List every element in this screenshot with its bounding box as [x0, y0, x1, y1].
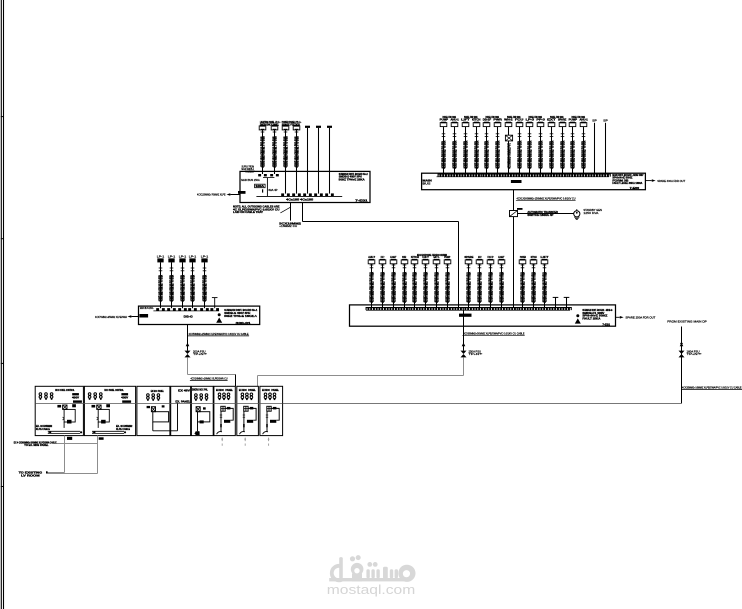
svg-text:EX 48V: EX 48V — [178, 390, 190, 393]
svg-text:4CX95MM2+50MM2 XLPE/SWA/PVC 0.: 4CX95MM2+50MM2 XLPE/SWA/PVC 0.6/1KV CU C… — [463, 332, 524, 336]
svg-text:4CX95 MM2+50M M2 PVC SWA: 4CX95 MM2+50M M2 PVC SWA — [442, 141, 448, 169]
svg-text:MECH EQUIP PANEL FEEDERS 4CX25: MECH EQUIP PANEL FEEDERS 4CX25MM2 — [417, 254, 447, 257]
svg-text:4CX95 MM2+50M M2 PVC SWA: 4CX95 MM2+50M M2 PVC SWA — [413, 272, 419, 303]
svg-text:50HZ TPN+E 16KA: 50HZ TPN+E 16KA — [224, 314, 253, 318]
svg-text:AHU-1: AHU-1 — [579, 118, 588, 122]
svg-text:SWITCH 1600A 4P: SWITCH 1600A 4P — [527, 213, 553, 217]
svg-text:4CX95 MM2+50M M2 PVC SWA: 4CX95 MM2+50M M2 PVC SWA — [170, 275, 176, 302]
svg-text:SP: SP — [603, 119, 608, 123]
svg-text:LIGHT: LIGHT — [390, 255, 396, 259]
svg-text:400V: 400V — [121, 397, 128, 400]
svg-text:LIFT: LIFT — [541, 255, 549, 259]
svg-text:SPARE FEEDER: SPARE FEEDER — [282, 122, 300, 126]
svg-text:4CX95 MM2+50M M2 PVC SWA: 4CX95 MM2+50M M2 PVC SWA — [435, 272, 441, 303]
svg-text:LAID ON CABLE TRAY: LAID ON CABLE TRAY — [233, 210, 263, 214]
svg-text:4CX95 MM2+50M M2 PVC SWA: 4CX95 MM2+50M M2 PVC SWA — [295, 136, 301, 167]
svg-text:EX MCC: EX MCC — [262, 389, 270, 392]
svg-text:4CX95 MM2+50M M2 PVC SWA: 4CX95 MM2+50M M2 PVC SWA — [478, 272, 484, 303]
svg-text:4CX120MM2+70MM2 XLPE: 4CX120MM2+70MM2 XLPE — [197, 193, 226, 197]
svg-text:400V: 400V — [72, 397, 79, 400]
svg-text:FCU: FCU — [515, 118, 523, 122]
svg-text:4CX95 MM2+50M M2 PVC SWA: 4CX95 MM2+50M M2 PVC SWA — [561, 141, 567, 169]
svg-text:LP-1: LP-1 — [157, 256, 165, 259]
svg-text:PP-3: PP-3 — [536, 118, 545, 122]
svg-text:4CX95 MM2+50M M2 PVC SWA: 4CX95 MM2+50M M2 PVC SWA — [159, 275, 165, 302]
svg-text:4CX95 MM2+50M M2 PVC SWA: 4CX95 MM2+50M M2 PVC SWA — [475, 141, 481, 169]
svg-text:PWR: PWR — [493, 118, 503, 122]
svg-text:PANEL: PANEL — [271, 389, 279, 392]
svg-text:FCU P: FCU P — [488, 255, 494, 259]
svg-text:POWER: POWER — [402, 255, 406, 259]
svg-text:BUS: BUS — [423, 182, 431, 186]
svg-text:EX MCC PANEL: EX MCC PANEL — [151, 389, 164, 393]
svg-text:PANEL: PANEL — [225, 389, 233, 392]
svg-text:7-E00: 7-E00 — [630, 186, 640, 190]
svg-text:MCC PANEL CONTROL: MCC PANEL CONTROL — [104, 388, 124, 392]
svg-text:EX. PANEL: EX. PANEL — [175, 400, 190, 404]
svg-text:TP+N: TP+N — [193, 352, 204, 356]
svg-text:SPARE: SPARE — [464, 255, 473, 259]
svg-text:XLPE CABLE: XLPE CABLE — [116, 427, 130, 431]
svg-text:SPARE 400A FDR OUT: SPARE 400A FDR OUT — [657, 179, 685, 183]
svg-text:63A 4P: 63A 4P — [269, 188, 278, 192]
svg-text:DB-G: DB-G — [184, 315, 194, 319]
svg-text:1250 KVA: 1250 KVA — [583, 211, 598, 215]
svg-text:4CX95 MM2+50M M2 PVC SWA: 4CX95 MM2+50M M2 PVC SWA — [532, 272, 538, 303]
svg-text:EMERGENCY PANEL: EMERGENCY PANEL — [260, 122, 279, 126]
svg-text:LP-1: LP-1 — [168, 256, 176, 259]
svg-text:4CX95 MM2+50M M2 PVC SWA: 4CX95 MM2+50M M2 PVC SWA — [521, 272, 527, 303]
svg-text:FAULT 25KA: FAULT 25KA — [582, 316, 600, 320]
svg-text:LP-1: LP-1 — [189, 256, 197, 259]
svg-text:4Cx185: 4Cx185 — [286, 198, 300, 202]
svg-text:300-01: 300-01 — [236, 321, 252, 325]
svg-text:XLPE CABLE: XLPE CABLE — [36, 427, 50, 431]
svg-text:4CX95 MM2+50M M2 PVC SWA: 4CX95 MM2+50M M2 PVC SWA — [543, 272, 549, 303]
svg-text:4CX95 MM2+50M M2 PVC SWA: 4CX95 MM2+50M M2 PVC SWA — [485, 141, 491, 169]
svg-text:4CX95 MM2+50M M2 PVC SWA: 4CX95 MM2+50M M2 PVC SWA — [464, 141, 470, 169]
svg-text:4CX95 MM2+50M M2 PVC SWA: 4CX95 MM2+50M M2 PVC SWA — [181, 275, 187, 302]
svg-text:PANEL: PANEL — [248, 389, 256, 392]
svg-text:4CX95 MM2+50M M2 PVC SWA: 4CX95 MM2+50M M2 PVC SWA — [528, 141, 534, 169]
svg-text:4CX95 MM2+50M M2 PVC SWA: 4CX95 MM2+50M M2 PVC SWA — [191, 275, 197, 302]
svg-text:4CX95 MM2+50M M2 PVC SWA: 4CX95 MM2+50M M2 PVC SWA — [203, 275, 209, 302]
svg-text:4CX16MM2+16MM2 XLPE/SWA CU: 4CX16MM2+16MM2 XLPE/SWA CU — [191, 377, 228, 381]
svg-text:LV ROOM: LV ROOM — [21, 474, 41, 478]
svg-text:MCC PANEL CONTROL: MCC PANEL CONTROL — [55, 388, 75, 392]
svg-text:EX MCC: EX MCC — [216, 389, 224, 392]
svg-text:4CX95 MM2+50M M2 PVC SWA: 4CX95 MM2+50M M2 PVC SWA — [392, 272, 398, 303]
svg-text:4CX95 MM2+50M M2 PVC SWA: 4CX95 MM2+50M M2 PVC SWA — [284, 136, 290, 167]
svg-text:LIGHT: LIGHT — [498, 255, 504, 259]
svg-text:FROM EXISTING MAIN DP: FROM EXISTING MAIN DP — [667, 320, 707, 324]
svg-text:EMERG MCC PNL: EMERG MCC PNL — [192, 387, 208, 391]
svg-text:400/230V: 400/230V — [245, 170, 255, 174]
svg-text:EX MCC: EX MCC — [239, 389, 247, 392]
svg-text:POWER: POWER — [520, 255, 527, 259]
svg-text:4CX95 MM2+50M M2 PVC SWA: 4CX95 MM2+50M M2 PVC SWA — [261, 136, 267, 167]
svg-text:4CX95 MM2+50M M2 PVC SWA: 4CX95 MM2+50M M2 PVC SWA — [273, 136, 279, 167]
svg-text:AHU P: AHU P — [368, 255, 375, 259]
svg-text:4CX95 MM2+50M M2 PVC SWA: 4CX95 MM2+50M M2 PVC SWA — [500, 272, 506, 303]
svg-text:4CX95 MM2+50M M2 PVC SWA: 4CX95 MM2+50M M2 PVC SWA — [467, 272, 473, 303]
svg-text:4CX95 MM2+50M M2 PVC SWA: 4CX95 MM2+50M M2 PVC SWA — [539, 141, 545, 169]
svg-text:4CX95 MM2+50M M2 PVC SWA: 4CX95 MM2+50M M2 PVC SWA — [489, 272, 495, 303]
svg-text:4CX95 MM2+50M M2 PVC SWA: 4CX95 MM2+50M M2 PVC SWA — [582, 141, 588, 169]
svg-text:LP-1: LP-1 — [179, 256, 187, 259]
svg-text:AHU P: AHU P — [478, 255, 482, 259]
svg-text:4CX95 MM2+50M M2 PVC SWA: 4CX95 MM2+50M M2 PVC SWA — [550, 141, 556, 169]
svg-text:KITCH: KITCH — [472, 118, 480, 122]
svg-text:50HZ TPN+E 25KA: 50HZ TPN+E 25KA — [339, 177, 365, 181]
svg-text:MAIN BUS 250A: MAIN BUS 250A — [241, 178, 260, 182]
svg-text:TO EX. MDB PANEL: TO EX. MDB PANEL — [24, 443, 48, 447]
svg-text:SPARE 250A FDR OUT: SPARE 250A FDR OUT — [625, 316, 655, 320]
svg-text:FCU P: FCU P — [381, 255, 385, 259]
svg-text:4CX70MM2+35MM2 XLPE/SWA: 4CX70MM2+35MM2 XLPE/SWA — [95, 315, 127, 319]
svg-text:SP: SP — [592, 119, 597, 123]
svg-text:FAULT LEVEL 36KA 1600A: FAULT LEVEL 36KA 1600A — [612, 181, 642, 185]
svg-text:7-E01: 7-E01 — [355, 198, 368, 202]
svg-text:4CX95 MM2+50M M2 PVC SWA: 4CX95 MM2+50M M2 PVC SWA — [424, 272, 430, 303]
svg-text:100A: 100A — [255, 184, 264, 188]
svg-text:4CX95 MM2+50M M2 PVC SWA: 4CX95 MM2+50M M2 PVC SWA — [446, 272, 452, 303]
svg-text:mostaql.com: mostaql.com — [327, 583, 416, 597]
svg-text:AHU-1: AHU-1 — [450, 118, 459, 122]
svg-text:SPARE: SPARE — [558, 118, 566, 122]
svg-text:4CX95 MM2+50M M2 PVC SWA: 4CX95 MM2+50M M2 PVC SWA — [370, 272, 376, 303]
svg-text:MAIN BUS 250A: MAIN BUS 250A — [140, 306, 154, 310]
svg-text:7-E02: 7-E02 — [602, 322, 610, 326]
svg-text:4CX95 MM2+50M M2 PVC SWA: 4CX95 MM2+50M M2 PVC SWA — [518, 141, 524, 169]
svg-text:LP-1: LP-1 — [201, 256, 209, 259]
svg-text:4CX1X300MM2+150MM2 XLPE/SWA/PV: 4CX1X300MM2+150MM2 XLPE/SWA/PVC 0.6/1KV … — [517, 197, 576, 201]
svg-text:4CX35MM2+16MM2 XLPE/SWA/PVC 0.: 4CX35MM2+16MM2 XLPE/SWA/PVC 0.6/1KV CU C… — [682, 385, 742, 389]
svg-text:+16MM2 CU: +16MM2 CU — [279, 224, 297, 228]
svg-text:4CX95 MM2+50M M2 PVC SWA: 4CX95 MM2+50M M2 PVC SWA — [453, 141, 459, 169]
svg-text:4CX50MM2+25MM2 XLPE/SWA/PVC 0.: 4CX50MM2+25MM2 XLPE/SWA/PVC 0.6/1KV CU C… — [189, 332, 249, 336]
svg-text:4CX95 MM2+50M M2 PVC SWA: 4CX95 MM2+50M M2 PVC SWA — [496, 141, 502, 169]
svg-text:4CX95MM2+50MM2 PVC: 4CX95MM2+50MM2 PVC — [507, 143, 512, 169]
svg-text:KITCH: KITCH — [531, 255, 537, 259]
svg-text:4CX95 MM2+50M M2 PVC SWA: 4CX95 MM2+50M M2 PVC SWA — [403, 272, 409, 303]
svg-text:TP+N: TP+N — [687, 352, 698, 356]
svg-text:TP+N: TP+N — [469, 352, 480, 356]
svg-text:4CX95 MM2+50M M2 PVC SWA: 4CX95 MM2+50M M2 PVC SWA — [381, 272, 387, 303]
svg-text:1A: 1A — [252, 314, 257, 318]
svg-text:4Cx185: 4Cx185 — [300, 198, 314, 202]
svg-text:4CX95 MM2+50M M2 PVC SWA: 4CX95 MM2+50M M2 PVC SWA — [571, 141, 577, 169]
